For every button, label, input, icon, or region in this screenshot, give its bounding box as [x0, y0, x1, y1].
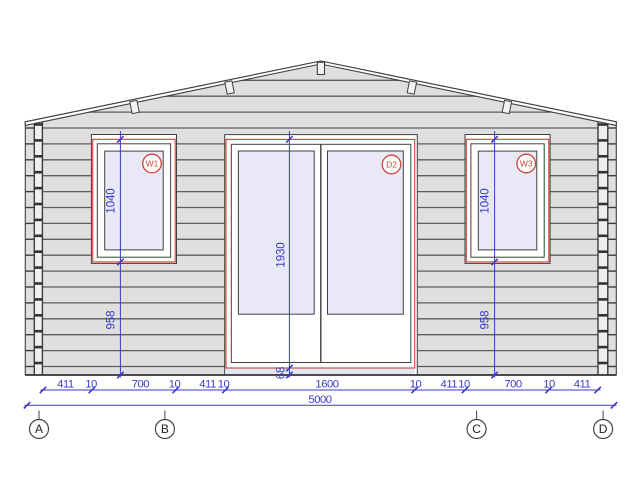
svg-text:10: 10: [169, 379, 181, 391]
svg-text:D2: D2: [386, 160, 397, 170]
svg-text:1600: 1600: [315, 379, 338, 391]
svg-text:700: 700: [504, 379, 522, 391]
svg-text:W1: W1: [146, 159, 159, 169]
svg-text:A: A: [35, 422, 43, 436]
svg-text:411: 411: [199, 379, 216, 391]
svg-text:W3: W3: [520, 159, 533, 169]
svg-text:10: 10: [543, 379, 555, 391]
svg-text:C: C: [472, 422, 481, 436]
svg-text:10: 10: [85, 379, 97, 391]
svg-text:1040: 1040: [105, 188, 117, 213]
svg-text:700: 700: [132, 379, 150, 391]
svg-text:958: 958: [480, 311, 492, 330]
svg-text:1040: 1040: [480, 188, 492, 213]
svg-text:411: 411: [574, 379, 591, 391]
svg-text:10: 10: [218, 379, 230, 391]
svg-text:5000: 5000: [308, 394, 331, 406]
svg-text:411: 411: [57, 379, 74, 391]
svg-text:B: B: [161, 422, 169, 436]
svg-text:10: 10: [410, 379, 422, 391]
svg-text:10: 10: [458, 379, 470, 391]
svg-text:68: 68: [276, 367, 288, 380]
svg-text:D: D: [599, 422, 608, 436]
svg-text:1930: 1930: [276, 242, 288, 267]
svg-text:411: 411: [441, 379, 458, 391]
svg-text:958: 958: [105, 311, 117, 330]
